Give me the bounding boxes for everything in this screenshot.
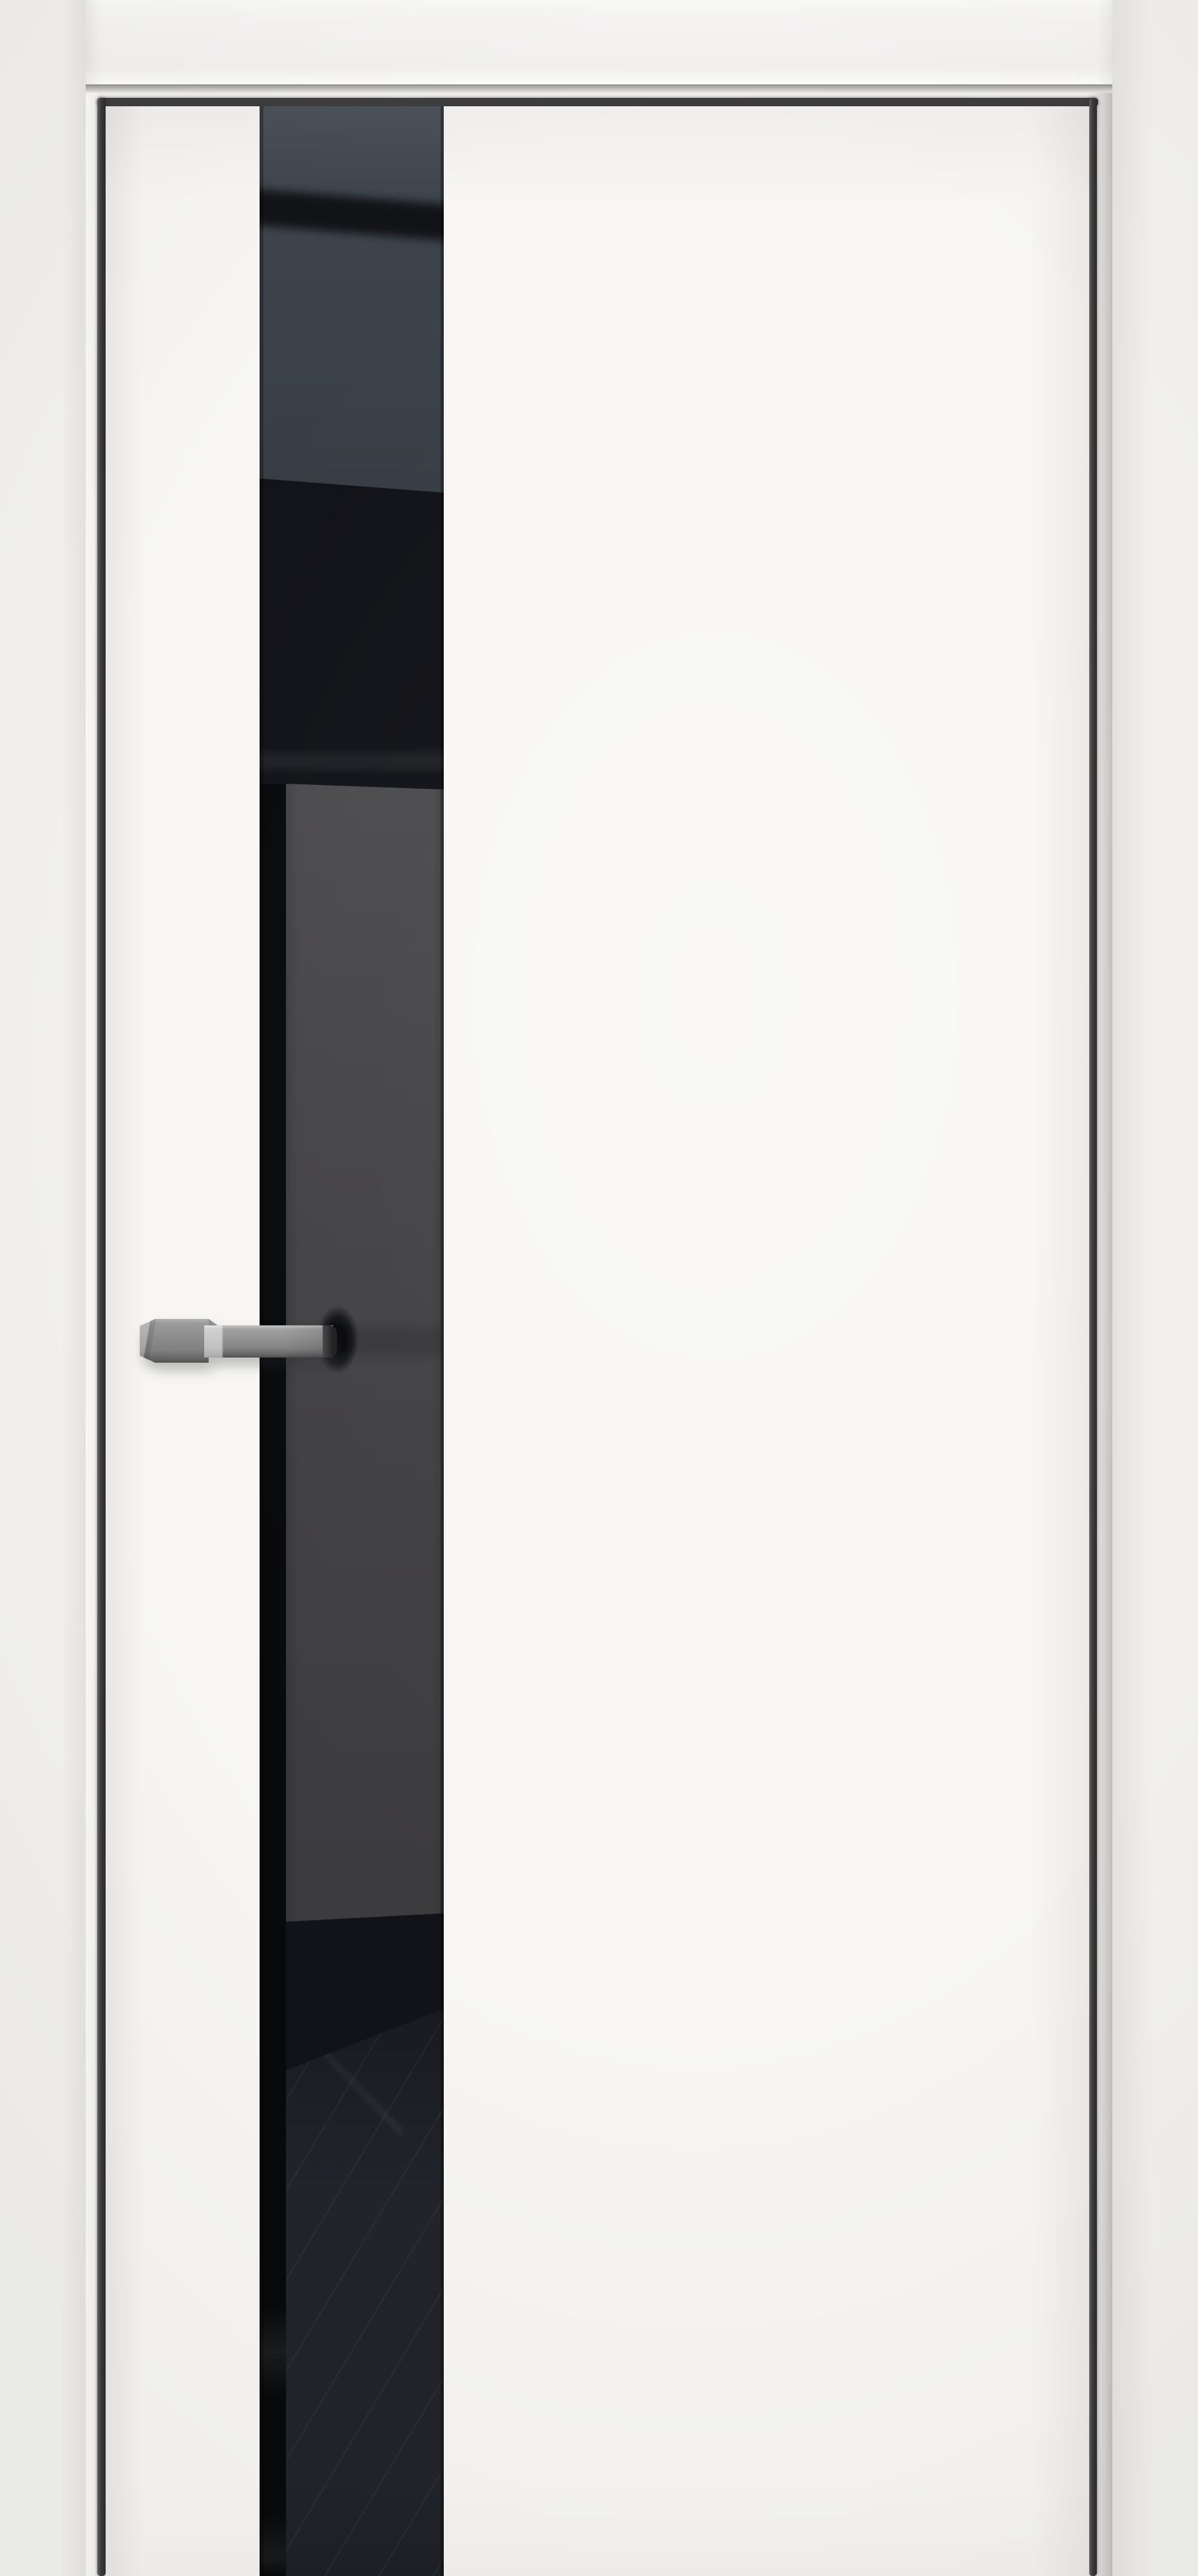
door-product-photo xyxy=(0,0,1198,2576)
wall-shadow-left xyxy=(61,0,86,2576)
frame-groove-shadow xyxy=(86,84,1112,93)
glass-reflection-bottom xyxy=(286,2009,444,2576)
handle-grip xyxy=(204,1325,333,1358)
wall-shadow-right xyxy=(1112,0,1152,2576)
frame-top-casing xyxy=(86,0,1112,84)
glass-reflection-top xyxy=(260,106,444,493)
door-handle xyxy=(140,1319,337,1363)
door-gap-top xyxy=(97,98,1098,106)
glass-reflection-panel-border xyxy=(260,784,286,2576)
handle-reflection-on-glass xyxy=(350,1327,444,1356)
glass-glare-streak xyxy=(282,2009,405,2136)
door-gap-right xyxy=(1089,98,1097,2576)
handle-tip xyxy=(323,1325,337,1358)
glass-reflection-light-band xyxy=(260,748,444,775)
door-gap-left xyxy=(97,98,106,2576)
handle-neck xyxy=(140,1319,209,1363)
